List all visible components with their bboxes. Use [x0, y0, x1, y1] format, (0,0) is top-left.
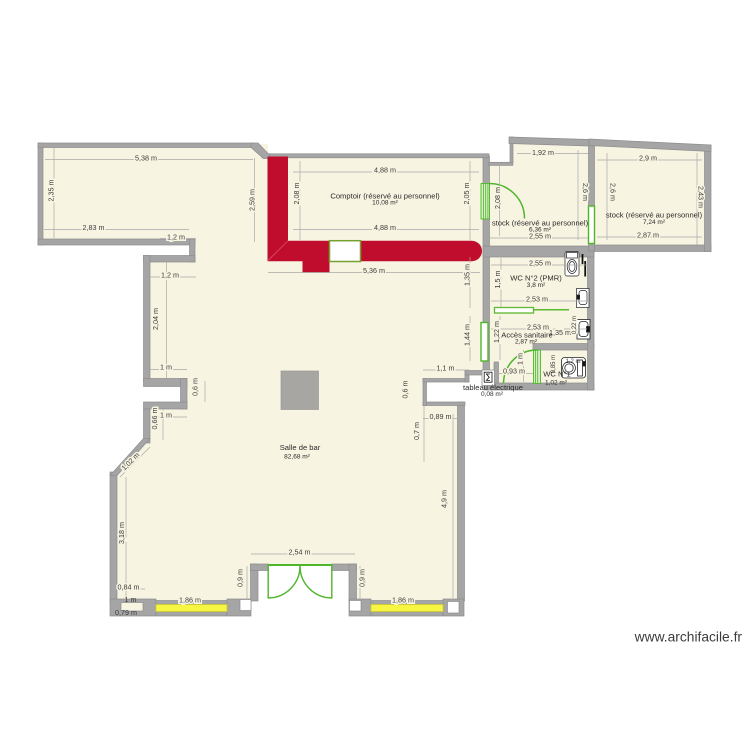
svg-text:10,08 m²: 10,08 m² [372, 200, 398, 207]
svg-text:0,93 m: 0,93 m [503, 367, 525, 376]
svg-text:2,9 m: 2,9 m [639, 154, 657, 163]
svg-text:0,89 m: 0,89 m [430, 412, 452, 421]
svg-text:1,44 m: 1,44 m [463, 324, 472, 346]
svg-text:www.archifacile.fr: www.archifacile.fr [634, 630, 743, 645]
svg-text:1,2 m: 1,2 m [167, 233, 185, 242]
svg-text:3,18 m: 3,18 m [117, 522, 126, 544]
svg-text:4,9 m: 4,9 m [440, 490, 449, 508]
svg-text:1,1 m: 1,1 m [437, 364, 455, 373]
svg-text:2,87 m: 2,87 m [637, 231, 659, 240]
svg-text:1,2 m: 1,2 m [161, 271, 179, 280]
svg-text:3,8 m²: 3,8 m² [527, 282, 546, 289]
svg-text:1 m: 1 m [160, 363, 172, 372]
svg-text:7,24 m²: 7,24 m² [643, 219, 666, 226]
svg-text:4,88 m: 4,88 m [374, 166, 396, 175]
svg-text:1,02 m²: 1,02 m² [545, 380, 568, 387]
svg-text:1,92 m: 1,92 m [532, 148, 554, 157]
svg-text:2,55 m: 2,55 m [529, 259, 551, 268]
svg-text:1,86 m: 1,86 m [392, 596, 414, 605]
svg-text:2,83 m: 2,83 m [83, 223, 105, 232]
svg-text:0,9 m: 0,9 m [236, 569, 245, 587]
svg-text:2,43 m: 2,43 m [697, 186, 706, 208]
svg-text:0,6 m: 0,6 m [191, 378, 200, 396]
svg-text:5,38 m: 5,38 m [135, 154, 157, 163]
svg-text:1,86 m: 1,86 m [179, 596, 201, 605]
svg-text:Salle de bar: Salle de bar [280, 443, 321, 452]
svg-text:4,88 m: 4,88 m [374, 223, 396, 232]
svg-text:2,08 m: 2,08 m [292, 183, 301, 205]
svg-text:1 m: 1 m [160, 411, 172, 420]
svg-text:1,2 m: 1,2 m [565, 359, 580, 365]
svg-text:2,6 m: 2,6 m [581, 183, 590, 201]
svg-text:1,22 m: 1,22 m [492, 321, 501, 343]
svg-text:0,08 m²: 0,08 m² [481, 391, 504, 398]
svg-text:0,79 m: 0,79 m [115, 608, 137, 617]
svg-text:1 m: 1 m [125, 595, 137, 604]
svg-text:0,66 m: 0,66 m [150, 408, 159, 430]
svg-text:2,59 m: 2,59 m [248, 189, 257, 211]
svg-text:WC N°1: WC N°1 [543, 369, 571, 378]
svg-text:2,05 m: 2,05 m [462, 183, 471, 205]
svg-text:2,35 m: 2,35 m [47, 180, 56, 202]
svg-text:0,84 m: 0,84 m [118, 583, 140, 592]
svg-text:1 m: 1 m [516, 353, 525, 365]
svg-text:0,7 m: 0,7 m [412, 422, 421, 440]
svg-text:2,6 m: 2,6 m [609, 183, 618, 201]
svg-text:2,87 m²: 2,87 m² [515, 339, 538, 346]
svg-text:2,04 m: 2,04 m [151, 308, 160, 330]
svg-text:1,5 m: 1,5 m [493, 271, 502, 289]
svg-text:0,22 m: 0,22 m [572, 316, 578, 334]
svg-text:2,08 m: 2,08 m [493, 187, 502, 209]
svg-text:2,53 m: 2,53 m [526, 295, 548, 304]
svg-text:0,6 m: 0,6 m [401, 381, 410, 399]
svg-text:2,54 m: 2,54 m [289, 548, 311, 557]
svg-text:5,36 m: 5,36 m [363, 266, 385, 275]
svg-text:6,36 m²: 6,36 m² [529, 227, 552, 234]
svg-text:1,35 m: 1,35 m [463, 264, 472, 286]
svg-text:WC N°2 (PMR): WC N°2 (PMR) [510, 273, 562, 282]
svg-text:82,68 m²: 82,68 m² [284, 454, 310, 461]
svg-text:0,9 m: 0,9 m [358, 569, 367, 587]
